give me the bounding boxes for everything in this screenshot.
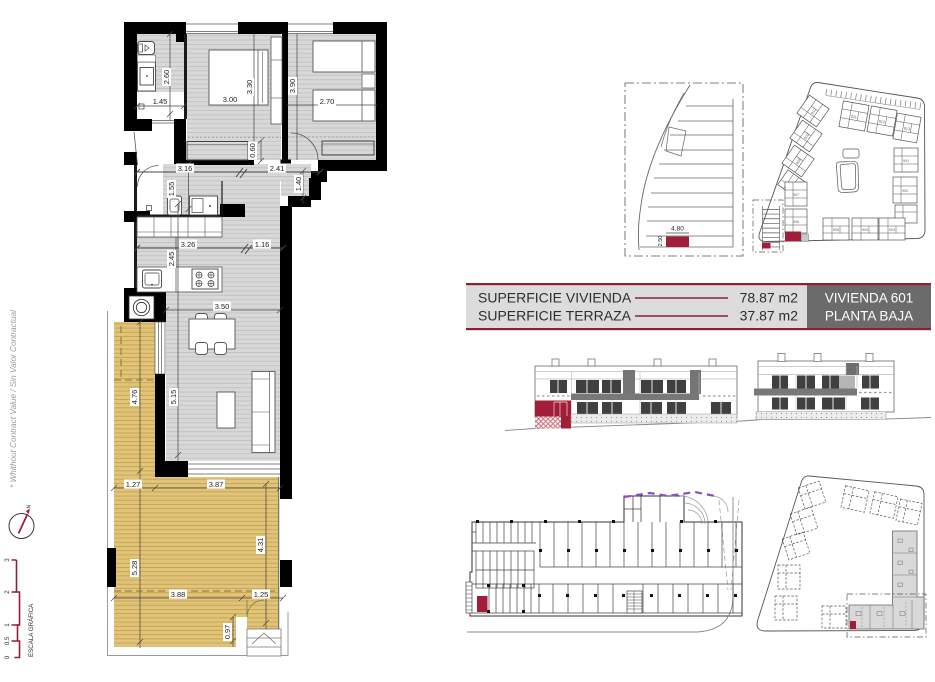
svg-text:3.16: 3.16	[178, 164, 193, 173]
svg-text:1.27: 1.27	[126, 480, 141, 489]
svg-text:906: 906	[793, 220, 799, 224]
svg-text:3.90: 3.90	[288, 79, 297, 94]
svg-text:1.16: 1.16	[255, 240, 270, 249]
svg-text:0,5: 0,5	[4, 636, 11, 645]
svg-text:VIVIENDA 601: VIVIENDA 601	[825, 291, 914, 306]
svg-text:0.97: 0.97	[223, 625, 232, 640]
svg-text:1.55: 1.55	[167, 182, 176, 197]
svg-text:3.88: 3.88	[171, 590, 186, 599]
svg-text:0.60: 0.60	[248, 143, 257, 158]
svg-text:3.30: 3.30	[245, 80, 254, 95]
svg-text:2.60: 2.60	[162, 70, 171, 85]
svg-text:4.80: 4.80	[671, 226, 684, 233]
svg-text:SUPERFICIE TERRAZA: SUPERFICIE TERRAZA	[478, 308, 632, 324]
svg-text:904: 904	[862, 228, 868, 232]
svg-text:N: N	[27, 504, 33, 508]
svg-text:4.31: 4.31	[256, 538, 265, 553]
svg-text:5.28: 5.28	[130, 561, 139, 576]
svg-text:1.45: 1.45	[153, 97, 168, 106]
svg-text:3.87: 3.87	[209, 480, 224, 489]
svg-text:3.26: 3.26	[181, 240, 196, 249]
svg-text:2: 2	[4, 590, 11, 594]
svg-text:905: 905	[833, 228, 839, 232]
svg-text:ESCALA GRÁFICA: ESCALA GRÁFICA	[28, 603, 35, 657]
svg-text:2.41: 2.41	[270, 164, 285, 173]
svg-text:902: 902	[902, 189, 908, 193]
svg-text:3.50: 3.50	[215, 302, 230, 311]
svg-text:1.40: 1.40	[294, 177, 303, 192]
svg-text:37.87 m2: 37.87 m2	[740, 308, 799, 324]
svg-text:4.76: 4.76	[130, 390, 139, 405]
svg-text:PLANTA BAJA: PLANTA BAJA	[825, 309, 913, 324]
svg-text:SUPERFICIE VIVIENDA: SUPERFICIE VIVIENDA	[478, 290, 632, 306]
svg-text:* Whithout Contract Value / Si: * Whithout Contract Value / Sin Valor Co…	[9, 310, 18, 488]
svg-text:3.00: 3.00	[223, 95, 238, 104]
svg-text:907: 907	[793, 193, 799, 197]
svg-text:5.15: 5.15	[169, 390, 178, 405]
svg-text:0: 0	[4, 655, 11, 659]
svg-text:901: 901	[903, 159, 909, 163]
svg-text:2.70: 2.70	[320, 97, 335, 106]
svg-text:78.87 m2: 78.87 m2	[740, 290, 799, 306]
svg-text:2.50: 2.50	[658, 236, 664, 247]
svg-text:1: 1	[4, 623, 11, 627]
svg-text:903: 903	[889, 228, 895, 232]
svg-text:2.45: 2.45	[167, 252, 176, 267]
svg-text:3: 3	[4, 558, 11, 562]
svg-text:1.25: 1.25	[254, 590, 269, 599]
